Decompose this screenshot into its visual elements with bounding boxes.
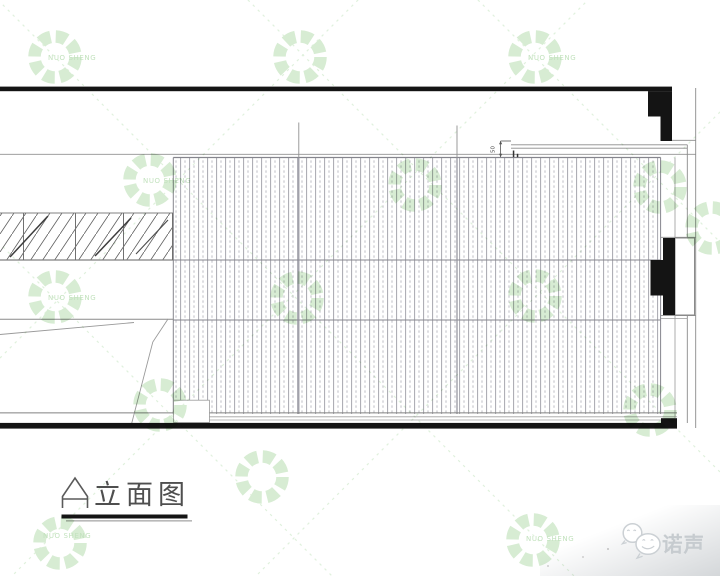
- drawing-title: 立面图: [94, 480, 190, 511]
- elevation-drawing-page: 50 立面图 NUO: [0, 0, 720, 576]
- ground-line: [0, 423, 677, 429]
- watermark-text: NUO SHENG: [143, 177, 191, 185]
- title-underline: [62, 515, 188, 519]
- dust-dot: [607, 548, 609, 550]
- top-beam: [0, 87, 672, 92]
- watermark-text: NUO SHENG: [48, 54, 96, 62]
- dust-dot: [547, 565, 549, 567]
- watermark-text: NUO SHENG: [48, 294, 96, 302]
- dust-dot: [582, 556, 584, 558]
- dimension-label: 50: [491, 146, 497, 153]
- dimension-annotation: [499, 141, 518, 157]
- watermark-text: NUO SHENG: [528, 54, 576, 62]
- top-right-step: [648, 91, 672, 141]
- glass-hatch-band: [0, 213, 173, 260]
- cad-elevation-canvas: 50 立面图 NUO: [0, 0, 720, 576]
- title-block: 立面图: [62, 478, 193, 521]
- right-reveal-box: [675, 238, 695, 315]
- brand-name: 诺声: [662, 533, 705, 557]
- watermark-text: NUO SHENG: [43, 532, 91, 540]
- elevation-linework: 50: [0, 88, 696, 428]
